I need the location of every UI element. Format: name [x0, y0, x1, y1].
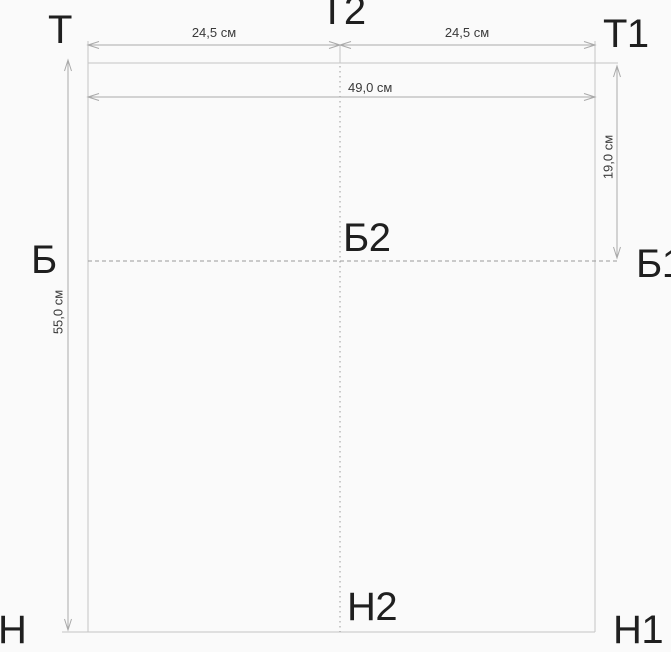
pattern-diagram: Т Т2 Т1 Б Б2 Б1 Н Н2 Н1 24,5 см 24,5 см … — [0, 0, 671, 650]
point-label-n2: Н2 — [347, 587, 397, 627]
dimension-label-full-width: 49,0 см — [348, 81, 392, 94]
point-label-n1: Н1 — [613, 610, 663, 650]
dimension-label-waist-left: 24,5 см — [192, 26, 236, 39]
dimension-label-waist-right: 24,5 см — [445, 26, 489, 39]
point-label-b: Б — [31, 240, 57, 280]
dimension-label-hip-depth: 19,0 см — [602, 135, 615, 179]
point-label-b2: Б2 — [343, 218, 391, 258]
point-label-t1: Т1 — [603, 14, 649, 54]
pattern-drawing — [0, 0, 671, 650]
point-label-t2: Т2 — [320, 0, 366, 31]
point-label-t: Т — [48, 10, 72, 50]
point-label-b1: Б1 — [636, 244, 671, 284]
dimension-label-side-length: 55,0 см — [52, 290, 65, 334]
point-label-n: Н — [0, 610, 26, 650]
